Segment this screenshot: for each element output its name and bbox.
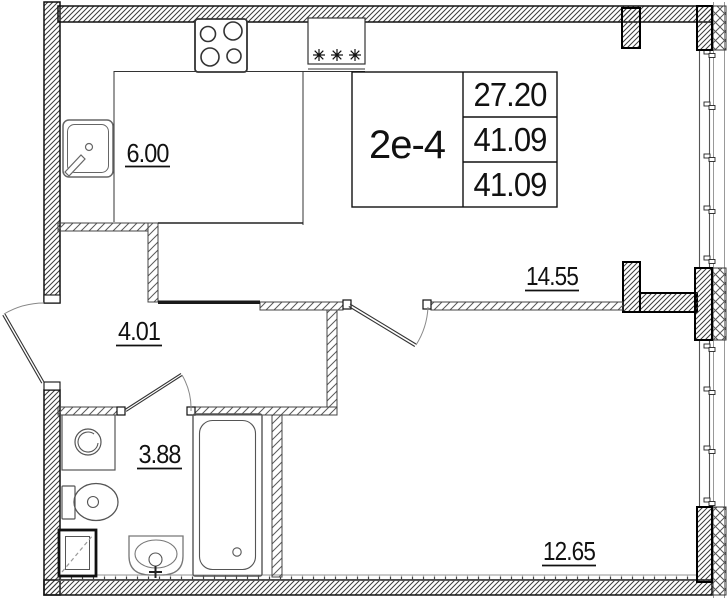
washing-machine-icon bbox=[62, 415, 115, 470]
label-hallway-area: 4.01 bbox=[118, 316, 160, 346]
partition-bath-east bbox=[272, 415, 282, 577]
bedroom-door[interactable] bbox=[343, 300, 431, 347]
bathroom-sink-icon bbox=[129, 536, 183, 578]
opening-lintel-line bbox=[158, 301, 260, 305]
utility-shaft-icon bbox=[59, 530, 96, 576]
label-kitchen-area: 6.00 bbox=[127, 138, 169, 168]
partition-living-bedroom bbox=[431, 302, 623, 310]
bathtub-icon bbox=[193, 414, 262, 576]
partition-hall-top bbox=[260, 302, 343, 310]
unit-info-box: 2е-4 27.20 41.09 41.09 bbox=[352, 72, 557, 207]
window-lower bbox=[700, 340, 710, 507]
partition-bath-north-left bbox=[58, 407, 117, 415]
wall-mid-right bbox=[640, 293, 697, 312]
wall-top bbox=[58, 6, 712, 22]
structural-piers bbox=[622, 6, 712, 582]
doors bbox=[3, 295, 431, 415]
label-bedroom-area: 12.65 bbox=[543, 536, 595, 566]
partition-hall-living bbox=[148, 223, 158, 302]
pier-top-right bbox=[697, 6, 712, 50]
wall-lower-right bbox=[697, 507, 712, 582]
wall-bottom-ticks bbox=[58, 575, 697, 581]
wall-bottom bbox=[44, 580, 712, 595]
floor-plan: 2е-4 27.20 41.09 41.09 6.00 4.01 3.88 14… bbox=[0, 0, 727, 600]
facade-hatch-segments bbox=[712, 6, 726, 595]
wall-left-upper bbox=[44, 2, 60, 303]
wall-left-lower bbox=[44, 390, 60, 595]
vent-stars-icon bbox=[308, 18, 365, 69]
unit-area-row2: 41.09 bbox=[474, 121, 547, 158]
toilet-icon bbox=[62, 484, 118, 521]
bathroom-door[interactable] bbox=[117, 374, 195, 416]
stove-icon bbox=[195, 19, 247, 72]
window-upper bbox=[700, 50, 710, 268]
kitchen-fixtures bbox=[63, 18, 365, 177]
pier-top bbox=[622, 8, 640, 48]
unit-area-row1: 27.20 bbox=[474, 76, 548, 113]
unit-area-row3: 41.09 bbox=[474, 166, 547, 203]
pier-mid-right bbox=[695, 268, 712, 340]
label-living-area: 14.55 bbox=[526, 261, 578, 291]
unit-number-label: 2е-4 bbox=[369, 123, 446, 167]
entrance-door[interactable] bbox=[3, 295, 60, 390]
partition-kitchen-hall bbox=[58, 223, 148, 231]
pier-mid-left bbox=[623, 262, 640, 312]
label-bathroom-area: 3.88 bbox=[139, 439, 181, 469]
floor-plan-canvas: 2е-4 27.20 41.09 41.09 6.00 4.01 3.88 14… bbox=[0, 0, 727, 600]
kitchen-sink-icon bbox=[63, 120, 113, 177]
partition-hall-bedroom bbox=[327, 310, 337, 407]
